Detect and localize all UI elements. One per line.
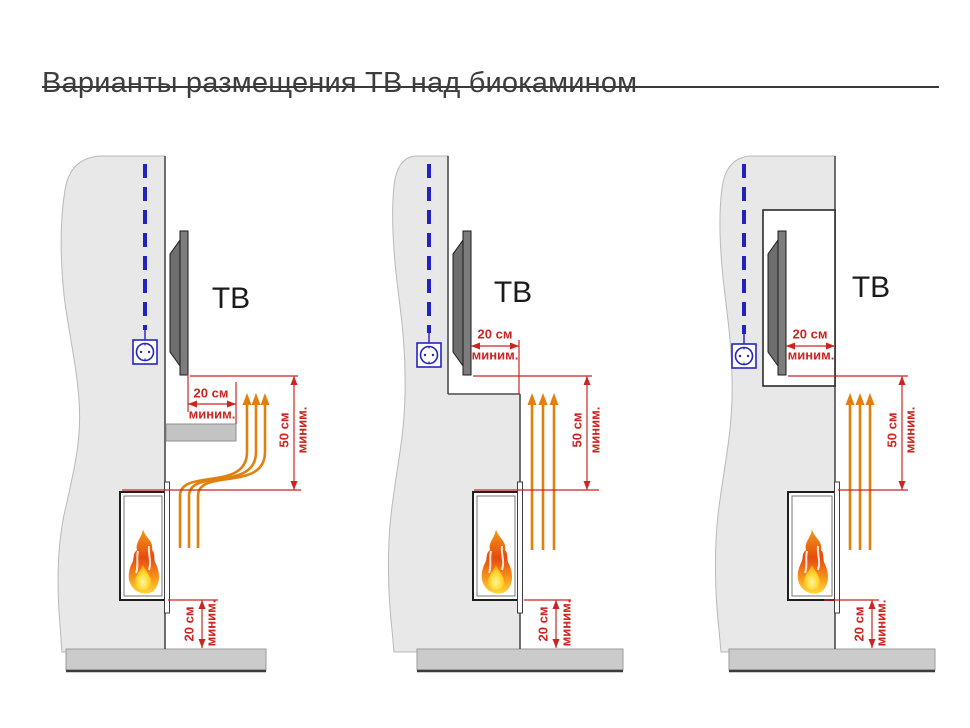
- power-outlet-icon: [417, 343, 441, 367]
- tv-side-profile: [768, 231, 786, 375]
- dim-fireplace-to-floor-qualifier: миним.: [204, 600, 219, 647]
- dim-tv-to-fireplace-qualifier: миним.: [295, 407, 310, 454]
- fireplace-glass: [835, 482, 840, 613]
- dim-fireplace-to-floor-value: 20 см: [852, 607, 867, 642]
- dim-tv-to-fireplace-value: 50 см: [570, 413, 585, 448]
- dim-fireplace-to-floor-qualifier: миним.: [874, 600, 889, 647]
- fireplace-glass: [165, 482, 170, 613]
- dim-fireplace-to-floor-qualifier: миним.: [559, 600, 574, 647]
- floor-slab: [66, 649, 266, 670]
- mantel-shelf: [166, 424, 236, 441]
- heat-flow-arrows: [846, 393, 875, 550]
- fireplace-glass: [518, 482, 523, 613]
- dim-tv-to-fireplace-qualifier: миним.: [903, 407, 918, 454]
- dim-niche-depth-qualifier: миним.: [788, 348, 835, 363]
- dim-shelf-overhang-value: 20 см: [194, 386, 229, 401]
- floor-slab: [417, 649, 623, 670]
- dim-tv-to-fireplace-qualifier: миним.: [588, 407, 603, 454]
- tv-label: ТВ: [212, 282, 250, 316]
- floor-slab: [729, 649, 935, 670]
- placement-diagram: [0, 0, 970, 728]
- dim-fireplace-to-floor-value: 20 см: [536, 607, 551, 642]
- heat-flow-arrows: [528, 393, 559, 550]
- dim-fireplace-to-floor-value: 20 см: [182, 607, 197, 642]
- infographic-canvas: Варианты размещения ТВ над биокамином: [0, 0, 970, 728]
- tv-side-profile: [170, 231, 188, 375]
- power-outlet-icon: [133, 340, 157, 364]
- power-outlet-icon: [732, 344, 756, 368]
- dim-shelf-overhang-qualifier: миним.: [189, 407, 236, 422]
- dim-niche-depth-value: 20 см: [793, 327, 828, 342]
- tv-side-profile: [453, 231, 471, 375]
- tv-label: ТВ: [494, 276, 532, 310]
- tv-label: ТВ: [852, 271, 890, 305]
- panel-1: [58, 156, 301, 671]
- dim-tv-to-fireplace-value: 50 см: [885, 413, 900, 448]
- dim-tv-setback-qualifier: миним.: [472, 348, 519, 363]
- dim-tv-setback-value: 20 см: [478, 327, 513, 342]
- dim-tv-to-fireplace-value: 50 см: [277, 413, 292, 448]
